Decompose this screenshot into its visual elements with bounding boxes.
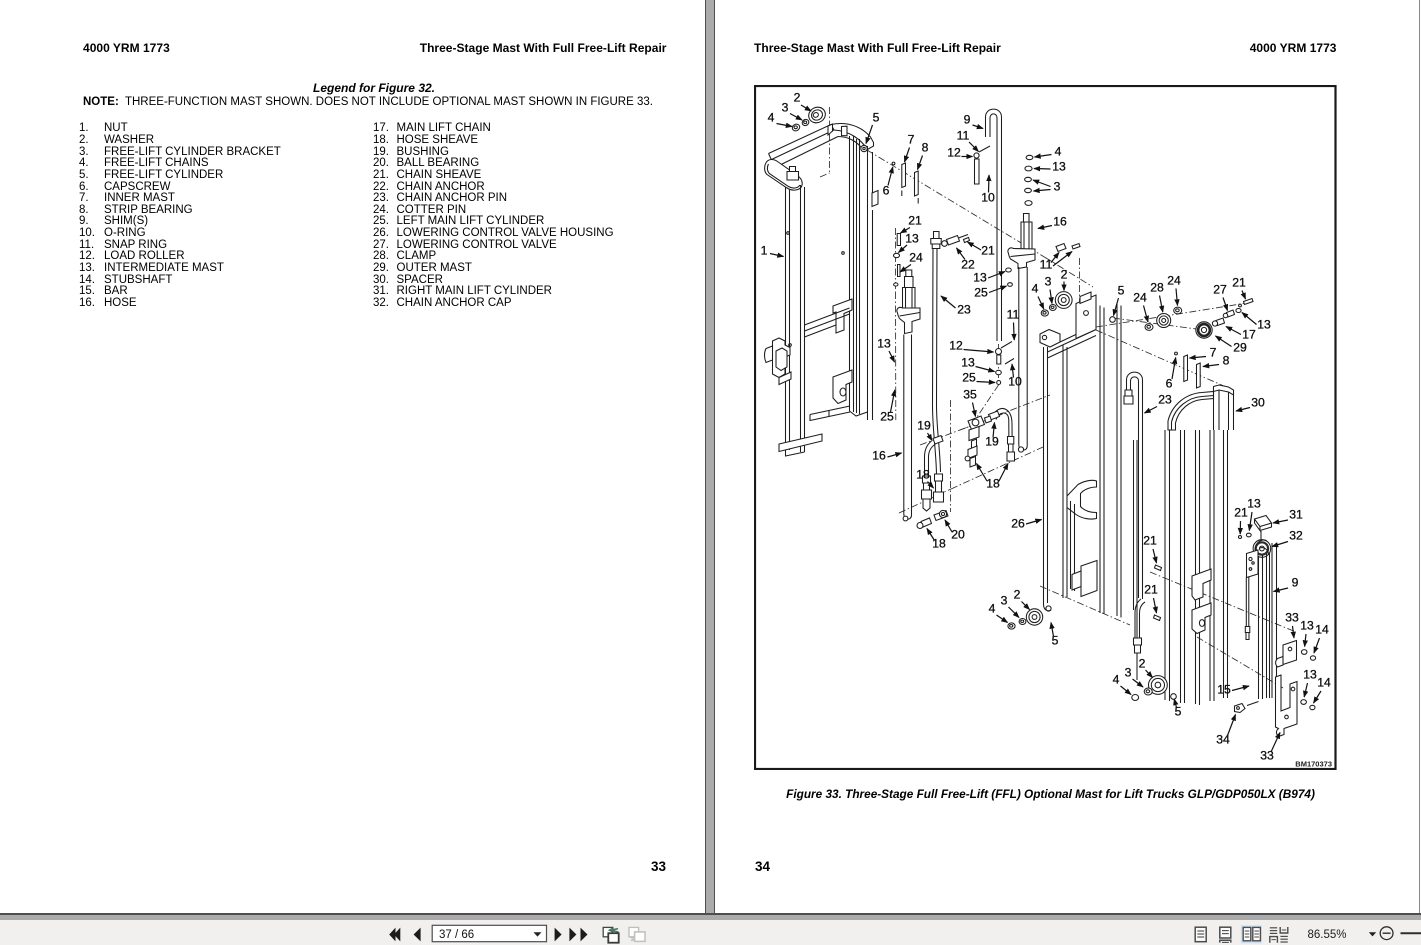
svg-text:16: 16 <box>1053 215 1067 229</box>
svg-text:3: 3 <box>1125 666 1132 680</box>
svg-text:31: 31 <box>1289 508 1303 522</box>
svg-text:8: 8 <box>922 141 929 155</box>
svg-text:2: 2 <box>1061 268 1068 282</box>
svg-text:33: 33 <box>1285 611 1299 625</box>
svg-text:12: 12 <box>947 146 961 160</box>
svg-text:23: 23 <box>957 303 971 317</box>
svg-text:29: 29 <box>1233 341 1247 355</box>
svg-text:3: 3 <box>1001 594 1008 608</box>
svg-text:18: 18 <box>916 468 930 482</box>
svg-text:28: 28 <box>1150 281 1164 295</box>
svg-text:11: 11 <box>957 129 970 143</box>
svg-text:13: 13 <box>973 271 987 285</box>
svg-text:18: 18 <box>932 537 946 551</box>
svg-text:8: 8 <box>1223 354 1230 368</box>
svg-text:3: 3 <box>1054 180 1061 194</box>
svg-text:27: 27 <box>1213 283 1227 297</box>
svg-text:14: 14 <box>1317 676 1331 690</box>
svg-text:19: 19 <box>917 419 931 433</box>
svg-text:4: 4 <box>1032 282 1039 296</box>
svg-text:13: 13 <box>1247 497 1261 511</box>
svg-text:25: 25 <box>974 286 988 300</box>
svg-text:5: 5 <box>1118 284 1125 298</box>
svg-text:21: 21 <box>1144 583 1158 597</box>
svg-text:7: 7 <box>908 133 915 147</box>
svg-text:10: 10 <box>1008 375 1022 389</box>
svg-text:2: 2 <box>1014 588 1021 602</box>
svg-text:13: 13 <box>1303 668 1317 682</box>
svg-text:16: 16 <box>872 449 886 463</box>
svg-text:32: 32 <box>1289 529 1303 543</box>
svg-text:7: 7 <box>1210 346 1217 360</box>
svg-text:9: 9 <box>1292 576 1299 590</box>
svg-text:86.55%: 86.55% <box>1308 929 1347 941</box>
svg-text:21: 21 <box>1143 534 1157 548</box>
svg-text:21: 21 <box>1232 276 1246 290</box>
svg-text:2: 2 <box>1139 657 1146 671</box>
svg-text:24: 24 <box>1167 274 1181 288</box>
svg-text:4: 4 <box>1055 145 1062 159</box>
svg-text:13: 13 <box>961 356 975 370</box>
svg-text:25: 25 <box>962 371 976 385</box>
svg-text:24: 24 <box>1133 291 1147 305</box>
svg-text:37 / 66: 37 / 66 <box>439 929 474 941</box>
svg-text:2: 2 <box>794 91 801 105</box>
svg-text:13: 13 <box>1052 160 1066 174</box>
svg-text:21: 21 <box>981 244 995 258</box>
svg-text:18: 18 <box>986 477 1000 491</box>
svg-text:20: 20 <box>951 528 965 542</box>
svg-text:21: 21 <box>1234 506 1248 520</box>
svg-text:5: 5 <box>1052 634 1059 648</box>
svg-text:22: 22 <box>961 258 975 272</box>
svg-text:6: 6 <box>883 184 890 198</box>
svg-text:25: 25 <box>880 410 894 424</box>
svg-text:12: 12 <box>949 339 963 353</box>
svg-text:26: 26 <box>1011 517 1025 531</box>
svg-text:4: 4 <box>1113 673 1120 687</box>
svg-text:4: 4 <box>768 111 775 125</box>
svg-text:24: 24 <box>909 251 923 265</box>
svg-text:14: 14 <box>1315 623 1329 637</box>
svg-text:17: 17 <box>1242 328 1256 342</box>
svg-text:21: 21 <box>908 214 922 228</box>
svg-text:13: 13 <box>1257 318 1271 332</box>
svg-text:30: 30 <box>1251 396 1265 410</box>
svg-text:BM170373: BM170373 <box>1295 760 1332 769</box>
svg-text:5: 5 <box>873 111 880 125</box>
svg-text:23: 23 <box>1158 393 1172 407</box>
svg-text:3: 3 <box>1045 275 1052 289</box>
svg-text:11: 11 <box>1007 308 1020 322</box>
svg-text:5: 5 <box>1175 705 1182 719</box>
svg-text:4: 4 <box>989 602 996 616</box>
svg-text:9: 9 <box>964 113 971 127</box>
svg-text:15: 15 <box>1217 683 1231 697</box>
svg-text:13: 13 <box>1300 619 1314 633</box>
svg-text:1: 1 <box>761 244 768 258</box>
svg-text:3: 3 <box>782 101 789 115</box>
svg-text:11: 11 <box>1040 258 1053 272</box>
svg-text:13: 13 <box>905 232 919 246</box>
svg-text:19: 19 <box>985 435 999 449</box>
svg-text:10: 10 <box>981 191 995 205</box>
svg-text:13: 13 <box>877 337 891 351</box>
svg-text:35: 35 <box>963 388 977 402</box>
